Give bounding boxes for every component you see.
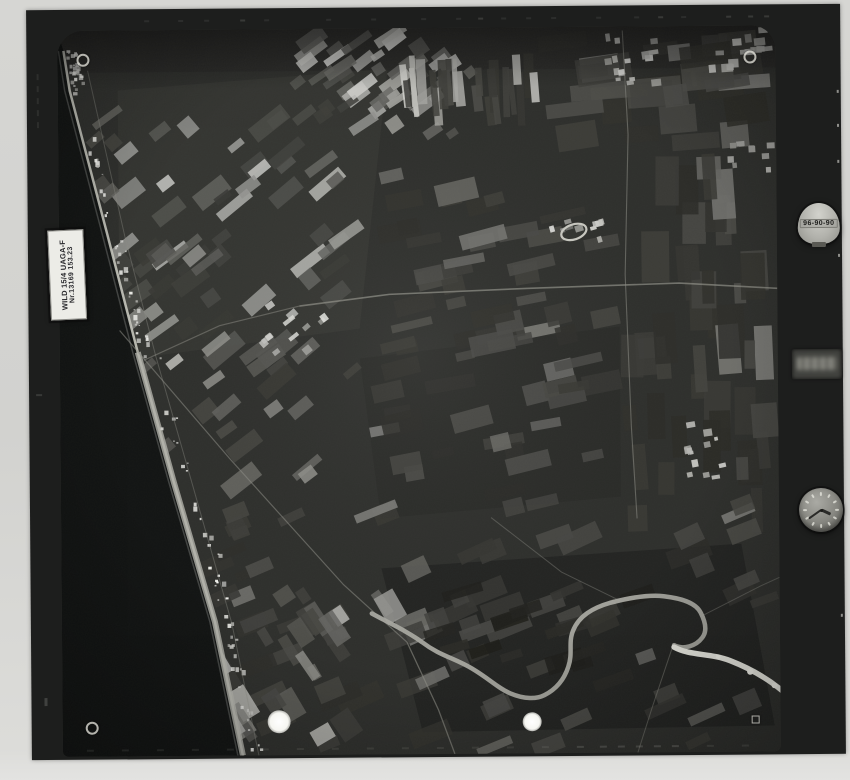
bottom-edge-tick [742, 745, 749, 747]
top-edge-tick [421, 18, 426, 20]
frame-counter-value: 96-90-90 [800, 219, 837, 228]
top-edge-tick [551, 17, 556, 19]
aerial-imagery [57, 25, 781, 757]
top-edge-tick [144, 20, 149, 22]
bottom-edge-tick [262, 748, 269, 750]
clock-tick [805, 500, 809, 504]
clock-tick [833, 500, 837, 504]
film-edge-speck [837, 160, 839, 163]
top-edge-tick [634, 16, 639, 18]
top-edge-tick [326, 19, 331, 21]
counter-glow [797, 357, 837, 370]
clock-tick [827, 494, 831, 498]
film-edge-speck [837, 90, 839, 93]
clock-tick [811, 522, 815, 526]
blurred-counter-window [792, 349, 842, 379]
top-edge-tick [681, 16, 686, 18]
fiducial-mark [76, 54, 89, 67]
clock-tick [833, 516, 837, 520]
aerial-photo: WILD 15/4 UAGA-F Nr.13169 153.23 96-90-9… [26, 4, 846, 760]
top-edge-tick [764, 15, 769, 17]
top-edge-tick [264, 19, 269, 21]
left-edge-tick [37, 86, 39, 92]
clock-tick [827, 522, 831, 526]
clock-center-pin [820, 508, 823, 511]
top-edge-tick [204, 20, 209, 22]
top-edge-tick [748, 15, 753, 17]
bottom-edge-tick [707, 745, 714, 747]
bottom-edge-tick [636, 745, 643, 747]
frame-counter-dome: 96-90-90 [798, 203, 840, 244]
bottom-edge-tick [672, 745, 679, 747]
clock-instrument [799, 488, 843, 532]
clock-tick [820, 524, 822, 528]
film-edge-speck [841, 614, 843, 617]
bottom-edge-tick [542, 746, 549, 748]
bottom-edge-tick [507, 746, 514, 748]
fiducial-mark [743, 50, 756, 63]
shading [57, 25, 781, 757]
left-edge-tick [37, 110, 39, 116]
top-edge-tick [658, 16, 663, 18]
bottom-edge-tick [367, 747, 374, 749]
bottom-edge-tick [618, 746, 625, 748]
bottom-edge-tick [192, 749, 199, 751]
bottom-edge-tick [122, 749, 129, 751]
bottom-edge-tick [654, 745, 661, 747]
top-edge-tick [456, 18, 461, 20]
top-edge-tick [478, 18, 483, 20]
camera-label-line2: Nr.13169 153.23 [66, 246, 76, 303]
clock-tick [835, 509, 839, 511]
bottom-edge-tick [87, 750, 94, 752]
bottom-edge-tick [332, 748, 339, 750]
fiducial-mark [752, 715, 760, 723]
bottom-edge-tick [437, 747, 444, 749]
bottom-edge-tick [297, 748, 304, 750]
top-edge-tick [526, 17, 531, 19]
punch-hole [523, 712, 542, 731]
top-edge-tick [240, 19, 245, 21]
film-edge-speck [837, 124, 839, 127]
bottom-edge-tick [577, 746, 584, 748]
bottom-edge-tick [472, 747, 479, 749]
clock-tick [803, 509, 807, 511]
clock-tick [811, 494, 815, 498]
left-edge-tick [37, 122, 39, 128]
top-edge-tick [178, 20, 183, 22]
bottom-edge-tick [157, 749, 164, 751]
left-edge-tick [37, 98, 39, 104]
top-edge-tick [596, 17, 601, 19]
clock-tick [820, 492, 822, 496]
left-edge-tick [36, 394, 42, 396]
camera-lens-label: WILD 15/4 UAGA-F Nr.13169 153.23 [47, 229, 87, 320]
top-edge-tick [501, 17, 506, 19]
top-edge-tick [726, 16, 731, 18]
bottom-edge-tick [402, 747, 409, 749]
top-edge-tick [371, 18, 376, 20]
fiducial-mark [86, 722, 99, 735]
bottom-edge-tick [600, 746, 607, 748]
left-edge-tick [37, 74, 39, 80]
left-edge-tick [44, 698, 47, 706]
film-edge-speck [838, 254, 840, 257]
punch-hole [268, 710, 291, 733]
bottom-edge-tick [227, 749, 234, 751]
